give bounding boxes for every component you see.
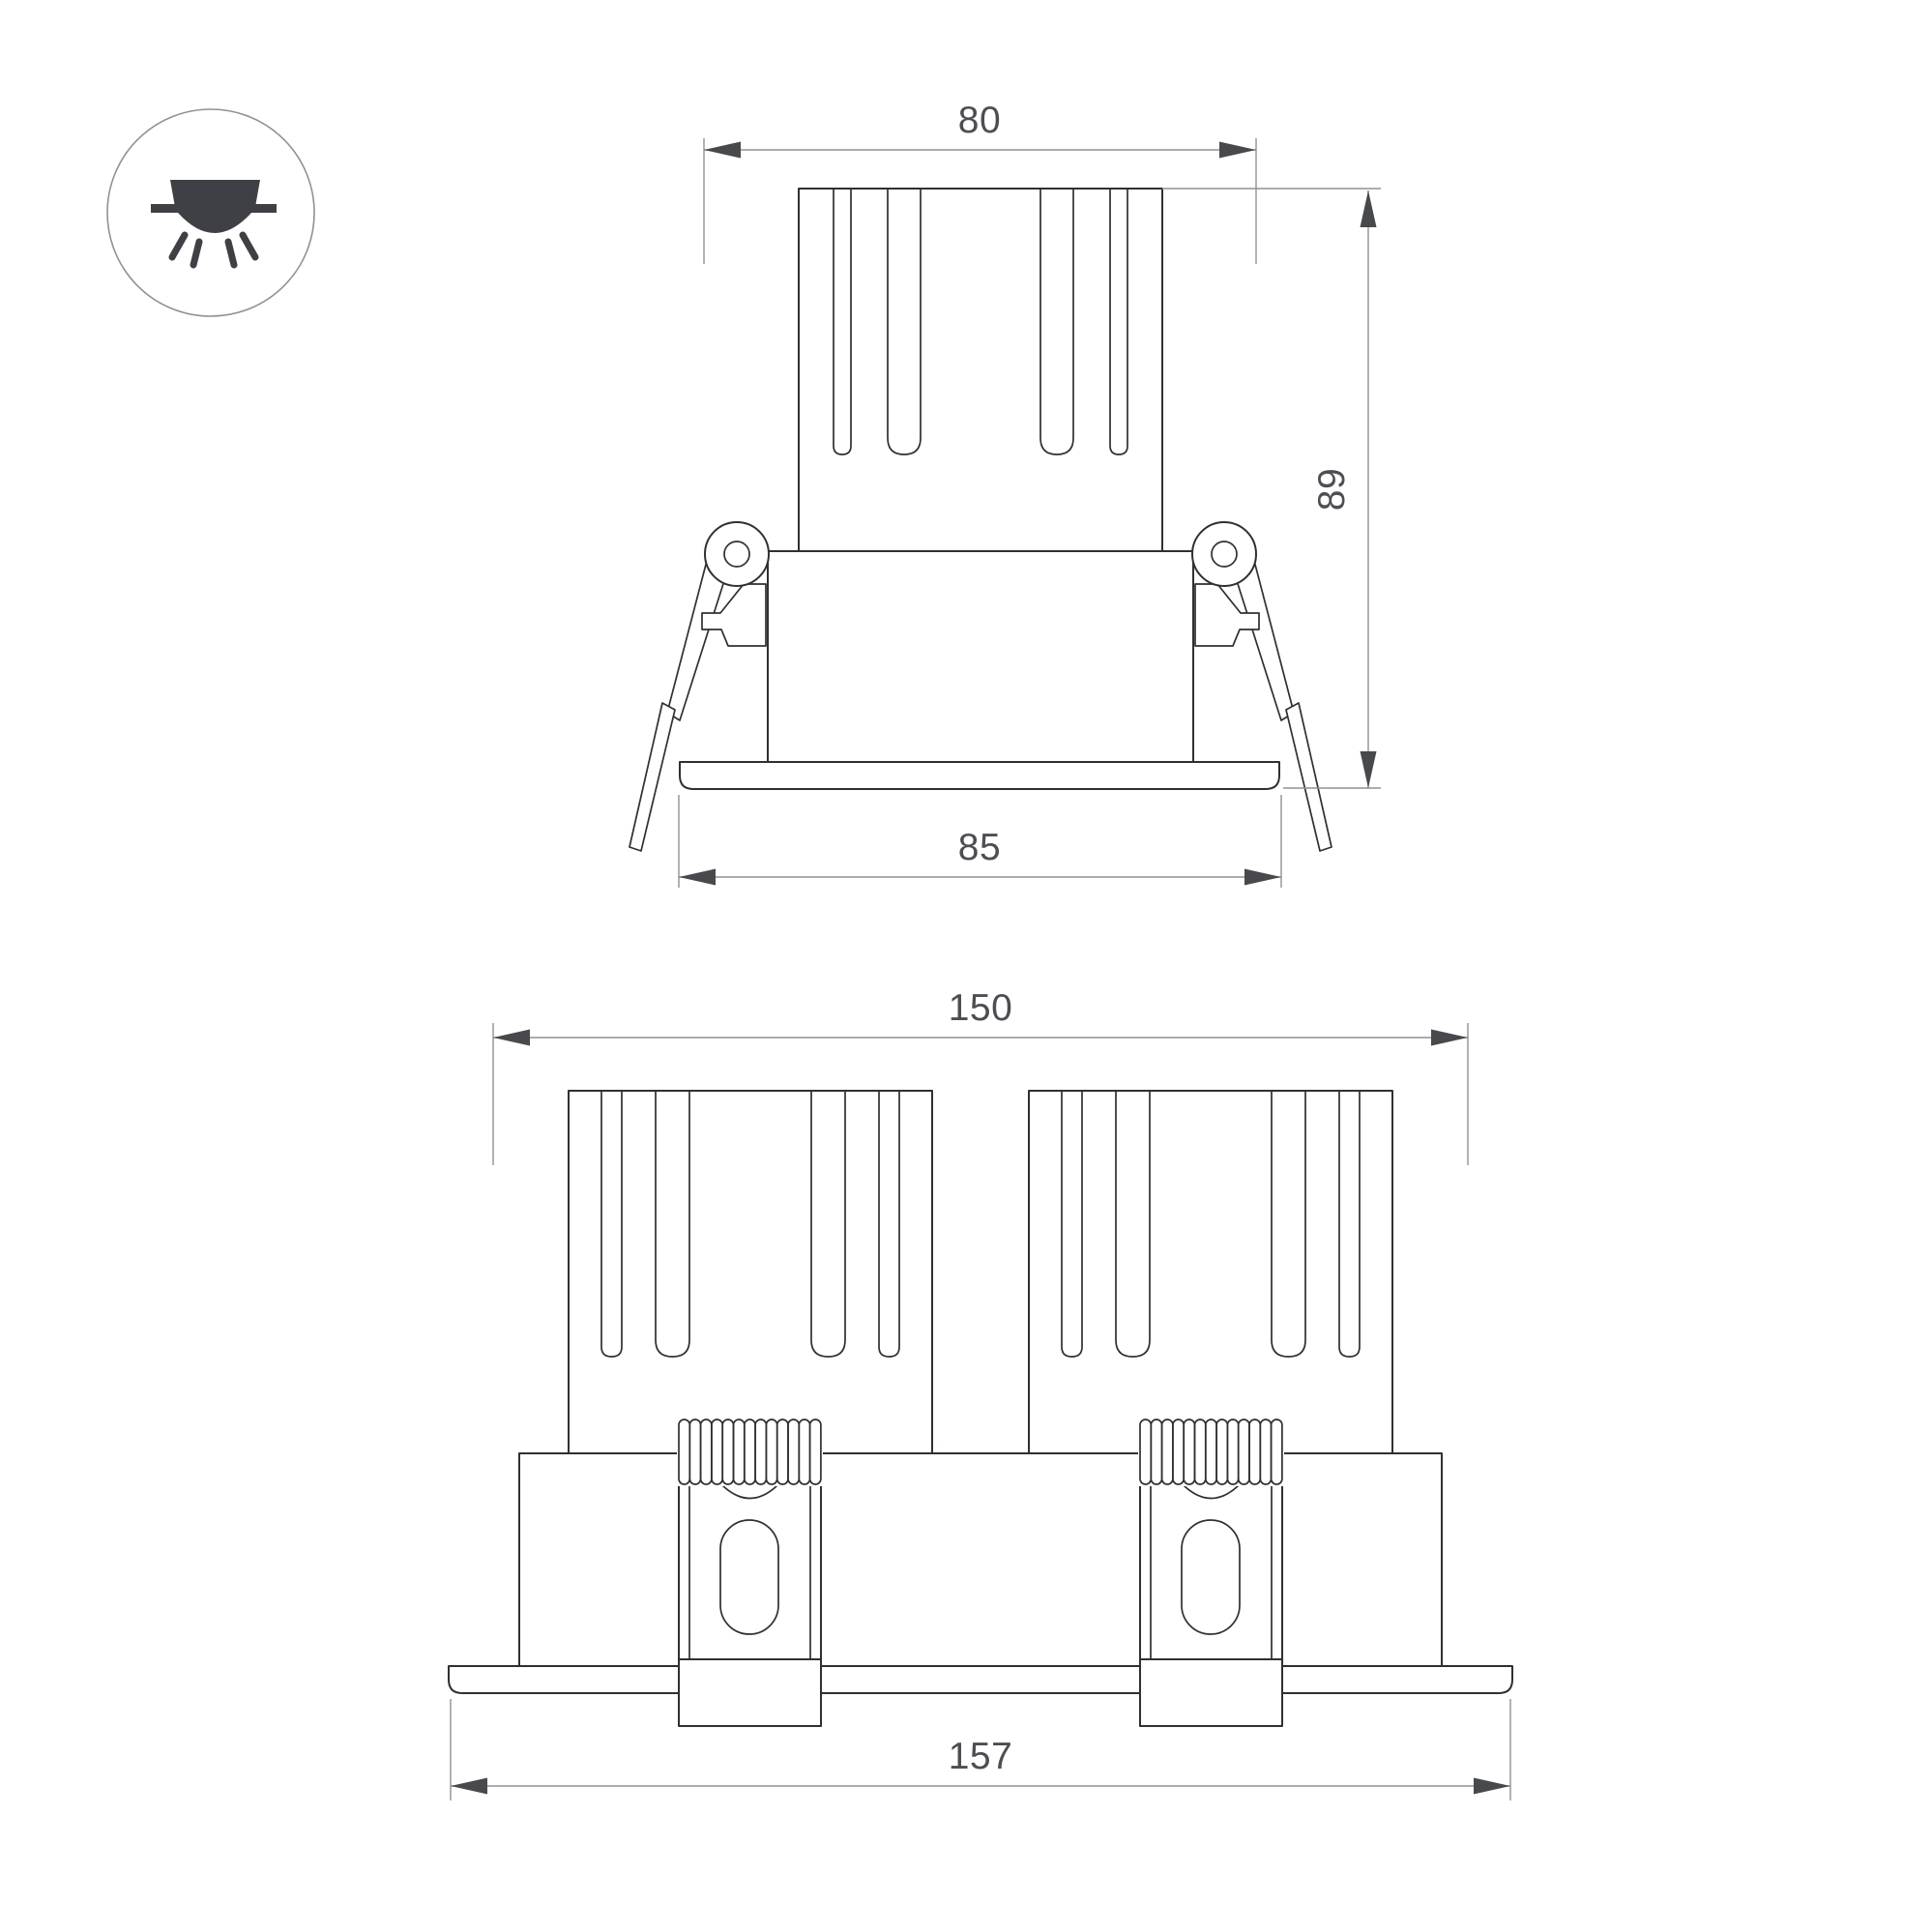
tower-body bbox=[679, 1484, 821, 1659]
tower-foot bbox=[1140, 1659, 1282, 1726]
mounting-flange bbox=[680, 762, 1279, 789]
heatsink-left bbox=[569, 1091, 932, 1453]
dimension-label: 89 bbox=[1311, 468, 1353, 511]
dimension-label: 85 bbox=[958, 827, 1001, 868]
terminal-tower-left bbox=[677, 1417, 823, 1726]
trim-body bbox=[768, 551, 1193, 762]
heatsink bbox=[799, 189, 1162, 551]
tower-body bbox=[1140, 1484, 1282, 1659]
legend-icon bbox=[107, 109, 314, 316]
dimension-label: 150 bbox=[949, 987, 1013, 1029]
tower-foot bbox=[679, 1659, 821, 1726]
dimension-drawing-canvas: 80 89 85 bbox=[0, 0, 1932, 1932]
pivot-disc bbox=[1192, 522, 1256, 586]
heatsink-right bbox=[1029, 1091, 1392, 1453]
downlight-flange-icon bbox=[151, 204, 277, 213]
downlight-body-icon bbox=[170, 180, 260, 207]
terminal-tower-right bbox=[1138, 1417, 1284, 1726]
pivot-disc bbox=[705, 522, 769, 586]
dimension-label: 80 bbox=[958, 100, 1001, 141]
mounting-flange bbox=[449, 1666, 1512, 1693]
trim-body bbox=[519, 1453, 1442, 1666]
dimension-label: 157 bbox=[949, 1736, 1013, 1777]
